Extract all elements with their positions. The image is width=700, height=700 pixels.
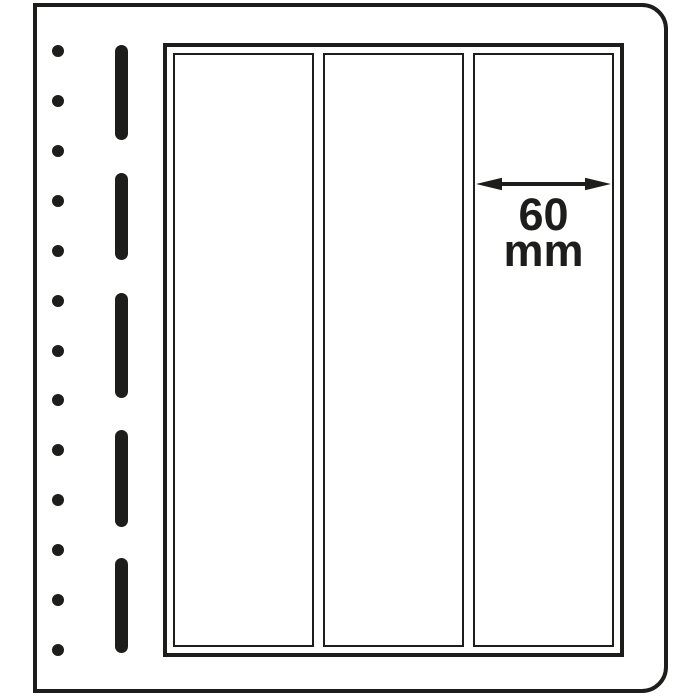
dimension-unit: mm (475, 233, 612, 269)
diagram-canvas: 60 mm (0, 0, 700, 700)
pocket-strip-1 (173, 53, 314, 647)
pocket-strip-2 (323, 53, 464, 647)
pocket-strip-3: 60 mm (473, 53, 614, 647)
dimension-label: 60 mm (475, 197, 612, 269)
pocket-panel: 60 mm (163, 43, 624, 657)
